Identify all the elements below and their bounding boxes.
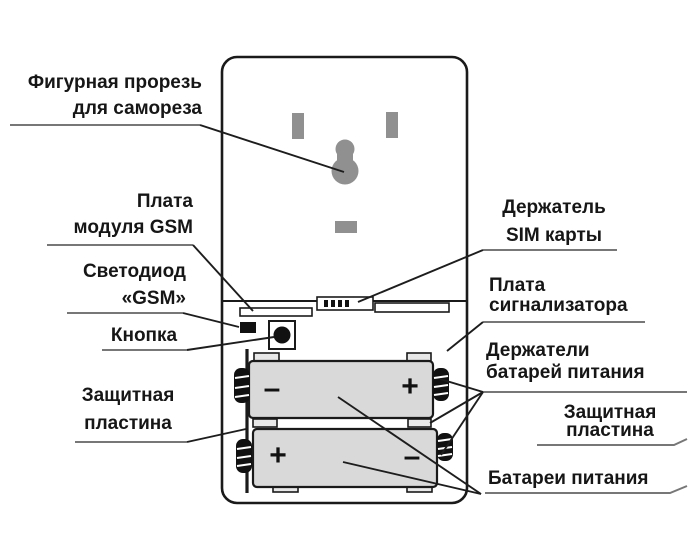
diagram-canvas: – + + – Фигурная прорезь для самореза Пл… [0, 0, 700, 544]
label-batteries: Батареи питания [488, 466, 688, 492]
label-gsm-led: Светодиод «GSM» [60, 258, 186, 312]
signal-board-bar [375, 303, 449, 312]
label-signal-board: Плата сигнализатора [489, 276, 659, 316]
battery-bottom-right-sign: – [392, 442, 432, 472]
gsm-led-icon [240, 322, 256, 333]
label-protective-plate-right: Защитная пластина [545, 404, 675, 440]
label-protective-plate-left: Защитная пластина [68, 382, 188, 438]
label-battery-holders: Держатели батарей питания [486, 340, 686, 384]
button-icon [269, 321, 295, 349]
label-button: Кнопка [100, 323, 188, 349]
label-keyhole-slot: Фигурная прорезь для самореза [8, 70, 202, 122]
label-gsm-module-board: Плата модуля GSM [40, 189, 193, 241]
battery-bottom-left-sign: + [258, 441, 298, 471]
battery-top-left-sign: – [252, 374, 292, 404]
label-sim-holder: Держатель SIM карты [488, 194, 620, 250]
small-slot [335, 221, 357, 233]
battery-top-right-sign: + [390, 372, 430, 402]
